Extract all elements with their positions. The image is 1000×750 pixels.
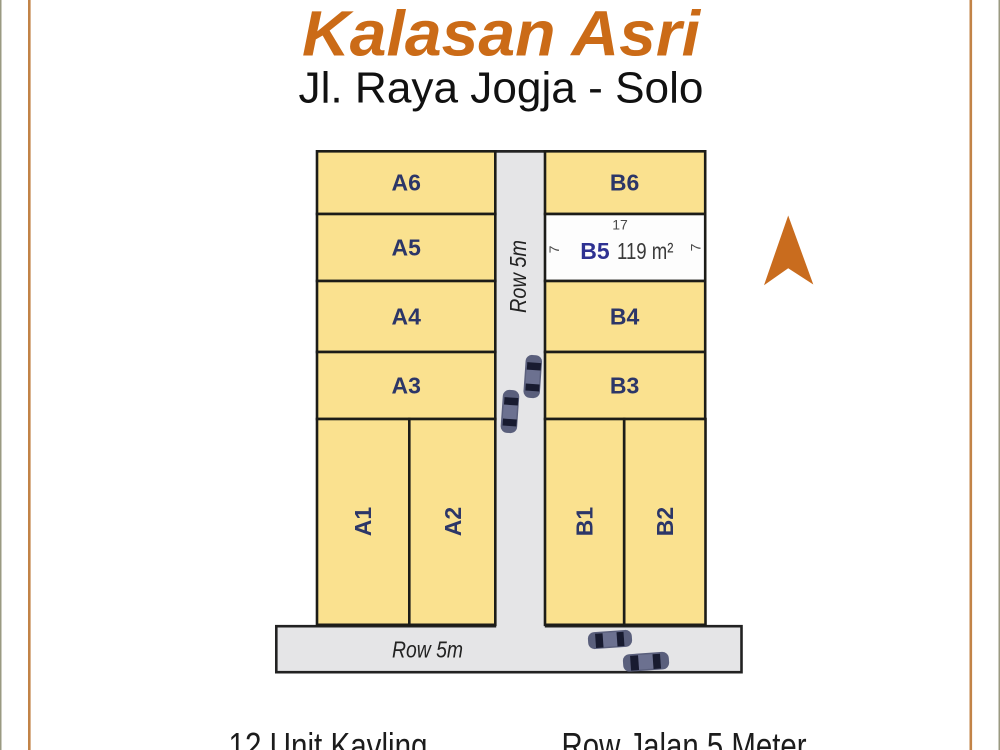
svg-text:B4: B4 — [610, 304, 640, 330]
svg-text:Row 5m: Row 5m — [505, 240, 531, 313]
svg-text:A5: A5 — [391, 235, 421, 261]
svg-text:B6: B6 — [610, 170, 639, 196]
svg-text:B5: B5 — [580, 238, 610, 264]
svg-text:B1: B1 — [572, 507, 598, 537]
svg-text:7: 7 — [546, 245, 562, 253]
svg-text:B3: B3 — [610, 373, 639, 399]
svg-text:Jl. Raya Jogja - Solo: Jl. Raya Jogja - Solo — [299, 64, 704, 113]
svg-text:A2: A2 — [440, 507, 466, 536]
svg-text:Kalasan Asri: Kalasan Asri — [302, 0, 701, 70]
svg-text:12 Unit Kavling: 12 Unit Kavling — [229, 725, 428, 750]
svg-text:Row 5m: Row 5m — [392, 637, 463, 663]
svg-text:Row Jalan 5 Meter: Row Jalan 5 Meter — [562, 725, 807, 750]
svg-text:A6: A6 — [391, 170, 420, 196]
svg-text:7: 7 — [688, 243, 704, 251]
svg-text:119 m²: 119 m² — [617, 238, 674, 264]
svg-text:A3: A3 — [391, 373, 420, 399]
svg-text:17: 17 — [612, 217, 628, 233]
svg-text:A1: A1 — [350, 507, 376, 537]
svg-text:A4: A4 — [391, 304, 421, 330]
svg-text:B2: B2 — [652, 507, 678, 536]
